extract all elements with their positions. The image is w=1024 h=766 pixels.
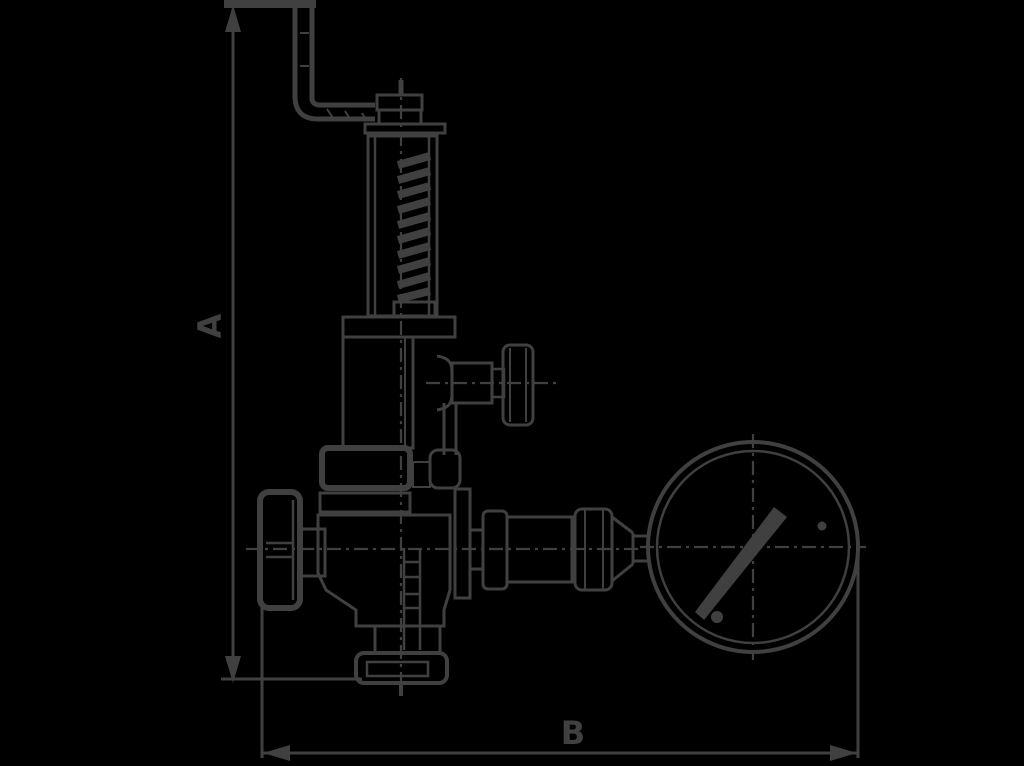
outlet-knob-inner-lines [510,348,526,422]
valve-technical-drawing: A B [0,0,1024,766]
dimension-b-arrow-right [830,745,857,761]
handwheel-stem [300,529,325,576]
body-gland-band [320,493,410,512]
adjustment-cap [365,80,445,133]
bottom-flange-inner [367,662,428,676]
fitting-flange [455,489,470,598]
gauge-fittings [455,489,649,598]
centerlines [246,78,640,698]
body-main-outline [318,515,450,626]
spring-coils [398,156,430,299]
outlet-elbow-block [413,462,430,487]
gauge-stop-pin-dot [818,522,827,531]
dimension-a-label: A [191,313,229,338]
pressure-gauge [640,434,866,660]
drawing-canvas: A B [0,0,1024,766]
handwheel [260,492,325,608]
cap-upper-block [377,95,422,110]
dimension-b-label: B [561,714,585,752]
bonnet-flange [343,317,455,337]
side-outlet [413,345,533,488]
dimension-b-arrow-left [263,745,290,761]
outlet-knob [503,345,533,425]
body-top-band [322,448,410,488]
outlet-downpipe [444,403,456,455]
gauge-needle-hub-dot [711,611,723,623]
lever-tube-outer-wall [295,8,375,119]
outlet-elbow [430,450,460,488]
outlet-neck [375,626,440,653]
body-inner-stem [404,548,420,650]
bonnet-top-plate [365,124,445,133]
lever-tube-inner-wall [312,8,375,105]
bonnet-lower-section [343,337,413,448]
spring-bonnet [343,136,455,448]
gauge-needle [695,507,787,620]
test-lever [224,4,375,120]
dimension-a-arrow-up [225,5,241,32]
